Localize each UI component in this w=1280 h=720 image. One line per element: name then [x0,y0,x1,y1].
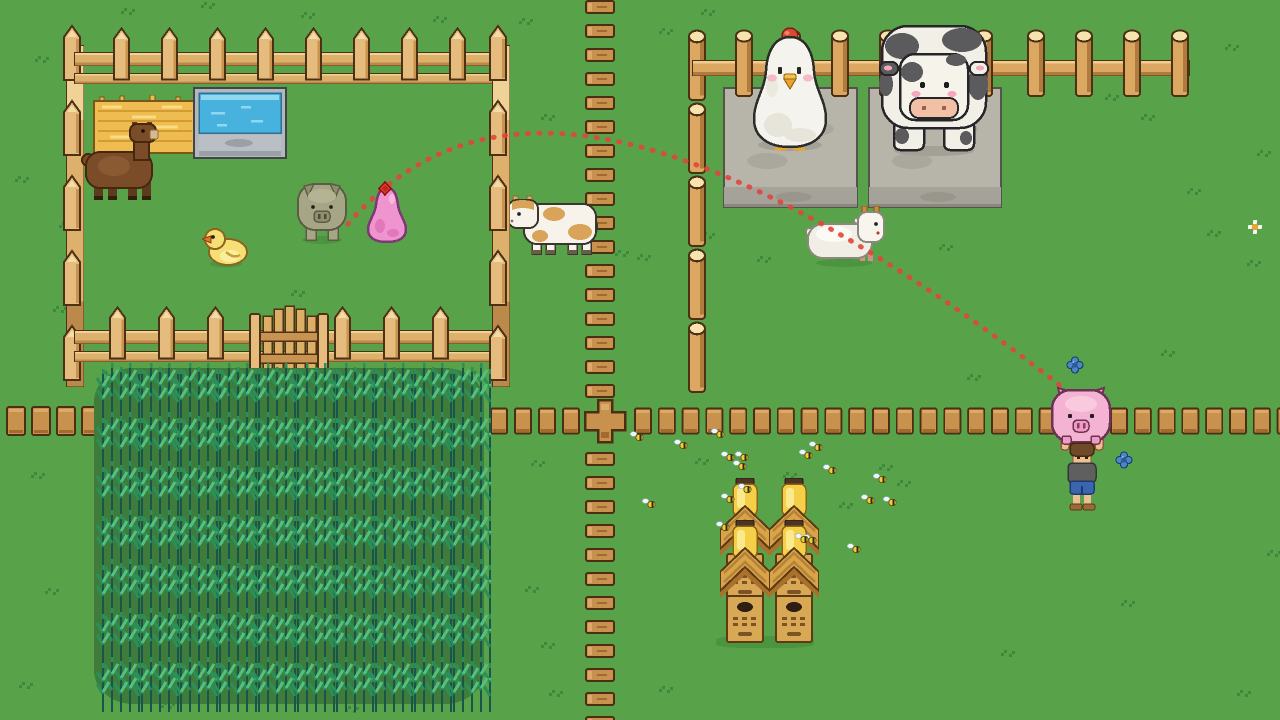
plank-path-column-upper [586,1,614,13]
plank-fence-post [873,408,889,433]
log-fence-pole-segment [689,250,705,319]
plank-path-column-upper [586,97,614,109]
pen-bottom-fence-picket [433,307,448,358]
pen-bottom-fence-picket [159,307,174,358]
pen-right-fence-picket [490,251,506,305]
plank-path-column-lower [586,693,614,705]
plank-path-column-lower [586,621,614,633]
plank-path-column-lower [586,669,614,681]
plank-fence-post [1159,408,1175,433]
plank-path-column-upper [586,73,614,85]
plank-fence-post [683,408,699,433]
pen-top-fence-picket [162,28,177,79]
plank-path-column-lower [586,501,614,513]
plank-path-column-upper [586,169,614,181]
plank-fence-post [944,408,960,433]
pen-left-fence-picket [64,251,80,305]
pen-right-fence-picket [490,326,506,380]
plank-path-column-lower [586,453,614,465]
game-viewport[interactable] [0,0,1280,720]
pen-right-fence-picket [490,176,506,230]
log-fence-post [1172,31,1188,97]
log-fence-post [1076,31,1092,97]
pen-top-fence-picket [210,28,225,79]
plank-path-column-upper [586,361,614,373]
pen-top-fence-picket [450,28,465,79]
plank-path-column-upper [586,25,614,37]
plank-fence-post [57,407,75,435]
pen-bottom-fence-picket [384,307,399,358]
pen-top-fence-rail [74,52,506,66]
pen-bottom-fence-picket [208,307,223,358]
pen-top-fence-picket [306,28,321,79]
plank-fence-post [778,408,794,433]
plank-fence-post [1206,408,1222,433]
plank-fence-post [659,408,675,433]
pen-top-fence-picket [258,28,273,79]
pen-top-fence-picket [402,28,417,79]
plank-path-column-lower [586,477,614,489]
plank-fence-post [1230,408,1246,433]
plank-path-column-upper [586,121,614,133]
pen-left-fence-picket [64,101,80,155]
plank-fence-post [1135,408,1151,433]
plank-fence-post [802,408,818,433]
plank-fence-post [754,408,770,433]
pen-right-fence-picket [490,26,506,80]
plank-path-column-upper [586,337,614,349]
water-trough[interactable] [194,88,286,158]
plank-path-column-lower [586,573,614,585]
game-stage [0,0,1280,720]
plank-fence-post [491,408,507,433]
plank-path-column-upper [586,313,614,325]
plank-fence-post [539,408,555,433]
plank-fence-post [515,408,531,433]
pen-right-fence-picket [490,101,506,155]
plank-path-column-lower [586,549,614,561]
log-fence-post [736,31,752,97]
plank-fence-post [968,408,984,433]
plank-fence-post [825,408,841,433]
plank-path-column-lower [586,597,614,609]
log-fence-post [1124,31,1140,97]
plank-fence-post [849,408,865,433]
pen-top-fence-rail [74,73,506,84]
plank-fence-post [563,408,579,433]
log-fence-post [1028,31,1044,97]
plank-fence-post [7,407,25,435]
pen-top-fence-picket [354,28,369,79]
log-fence-pole-segment [689,323,705,392]
plank-fence-post [1016,408,1032,433]
plank-path-column-lower [586,525,614,537]
plank-fence-post [1111,408,1127,433]
plank-path-column-upper [586,193,614,205]
plank-fence-post [730,408,746,433]
pen-bottom-fence-picket [335,307,350,358]
plank-path-column-lower [586,645,614,657]
plank-path-column-upper [586,289,614,301]
plank-fence-post [635,408,651,433]
log-fence-post [832,31,848,97]
plank-path-column-upper [586,49,614,61]
plank-path-column-upper [586,265,614,277]
plank-path-column-upper [586,145,614,157]
pen-left-fence-picket [64,176,80,230]
pen-top-fence-picket [114,28,129,79]
plank-fence-post [897,408,913,433]
pen-bottom-fence-picket [110,307,125,358]
plank-fence-post [1254,408,1270,433]
plank-fence-post [921,408,937,433]
plank-fence-post [32,407,50,435]
plank-path-column-upper [586,385,614,397]
plank-fence-post [992,408,1008,433]
plank-fence-post [1182,408,1198,433]
log-fence-pole-segment [689,177,705,246]
